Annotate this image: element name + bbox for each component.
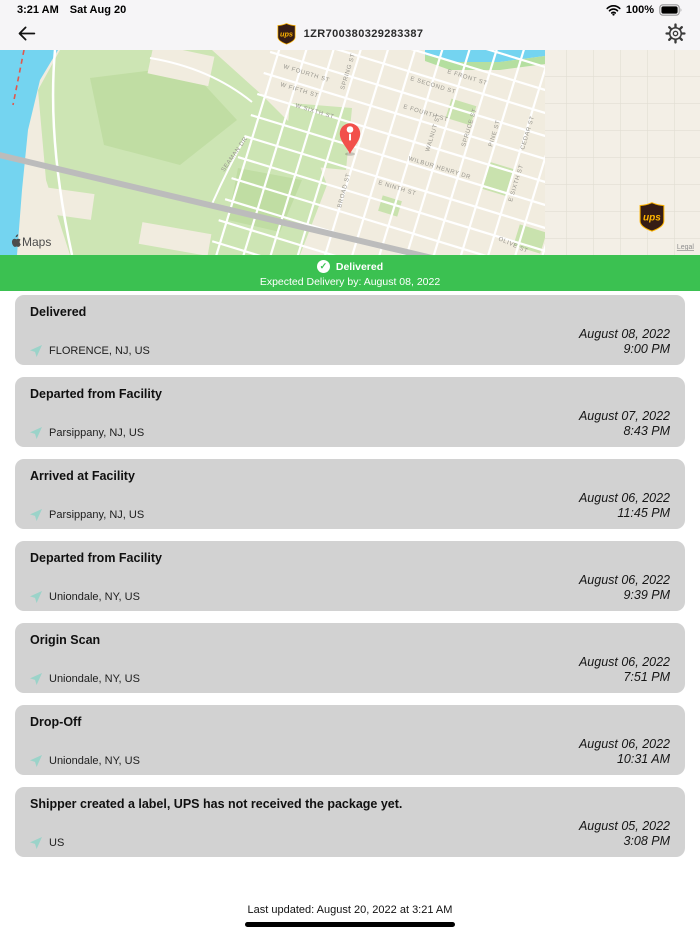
tracking-event-card: Departed from Facility Uniondale, NY, US… [15, 541, 685, 611]
event-date: August 08, 2022 [579, 327, 670, 342]
back-button[interactable] [13, 20, 39, 46]
event-title: Origin Scan [30, 633, 670, 647]
event-title: Delivered [30, 305, 670, 319]
event-location: Parsippany, NJ, US [30, 509, 144, 521]
event-title: Departed from Facility [30, 387, 670, 401]
event-time: 3:08 PM [579, 834, 670, 849]
location-arrow-icon [30, 509, 42, 521]
battery-icon [659, 4, 683, 16]
status-bar: 3:21 AM Sat Aug 20 100% [0, 0, 700, 17]
location-arrow-icon [30, 673, 42, 685]
event-title: Drop-Off [30, 715, 670, 729]
last-updated-text: Last updated: August 20, 2022 at 3:21 AM [0, 904, 700, 916]
shipment-header: 1ZR700380329283387 [277, 23, 424, 45]
event-date: August 06, 2022 [579, 737, 670, 752]
tracking-event-card: Arrived at Facility Parsippany, NJ, US A… [15, 459, 685, 529]
battery-percent: 100% [626, 4, 654, 16]
check-icon: ✓ [317, 260, 330, 273]
legal-link[interactable]: Legal [677, 244, 695, 251]
event-time: 9:39 PM [579, 588, 670, 603]
nav-bar: 1ZR700380329283387 [0, 17, 700, 50]
delivery-status-text: Delivered [336, 261, 383, 273]
event-date: August 06, 2022 [579, 491, 670, 506]
tracking-event-card: Drop-Off Uniondale, NY, US August 06, 20… [15, 705, 685, 775]
status-time: 3:21 AM [17, 4, 59, 16]
delivery-status-banner: ✓ Delivered Expected Delivery by: August… [0, 255, 700, 291]
event-datetime: August 06, 2022 9:39 PM [579, 573, 670, 603]
tracking-event-card: Shipper created a label, UPS has not rec… [15, 787, 685, 857]
expected-delivery-text: Expected Delivery by: August 08, 2022 [0, 276, 700, 288]
wifi-icon [606, 4, 621, 16]
tracking-event-card: Departed from Facility Parsippany, NJ, U… [15, 377, 685, 447]
settings-button[interactable] [662, 20, 688, 46]
map-canvas: W FOURTH STW FIFTH STW SIXTH STSPRING ST… [0, 50, 700, 255]
location-arrow-icon [30, 591, 42, 603]
event-time: 10:31 AM [579, 752, 670, 767]
svg-text:Maps: Maps [22, 235, 51, 249]
event-datetime: August 06, 2022 7:51 PM [579, 655, 670, 685]
location-arrow-icon [30, 345, 42, 357]
event-datetime: August 06, 2022 10:31 AM [579, 737, 670, 767]
delivery-map[interactable]: W FOURTH STW FIFTH STW SIXTH STSPRING ST… [0, 50, 700, 255]
event-location: Parsippany, NJ, US [30, 427, 144, 439]
tracking-event-card: Delivered FLORENCE, NJ, US August 08, 20… [15, 295, 685, 365]
event-time: 8:43 PM [579, 424, 670, 439]
event-datetime: August 07, 2022 8:43 PM [579, 409, 670, 439]
event-datetime: August 06, 2022 11:45 PM [579, 491, 670, 521]
event-title: Departed from Facility [30, 551, 670, 565]
event-location: FLORENCE, NJ, US [30, 345, 150, 357]
event-location: Uniondale, NY, US [30, 673, 140, 685]
ups-map-marker-logo [640, 203, 664, 231]
tracking-event-card: Origin Scan Uniondale, NY, US August 06,… [15, 623, 685, 693]
event-date: August 07, 2022 [579, 409, 670, 424]
gear-icon [665, 23, 686, 44]
event-datetime: August 05, 2022 3:08 PM [579, 819, 670, 849]
event-date: August 06, 2022 [579, 655, 670, 670]
event-title: Arrived at Facility [30, 469, 670, 483]
status-date: Sat Aug 20 [70, 4, 126, 16]
back-arrow-icon [16, 23, 37, 44]
tracking-number: 1ZR700380329283387 [304, 28, 424, 40]
event-location: US [30, 837, 64, 849]
event-time: 9:00 PM [579, 342, 670, 357]
event-time: 7:51 PM [579, 670, 670, 685]
location-arrow-icon [30, 427, 42, 439]
event-date: August 05, 2022 [579, 819, 670, 834]
location-arrow-icon [30, 837, 42, 849]
event-datetime: August 08, 2022 9:00 PM [579, 327, 670, 357]
event-date: August 06, 2022 [579, 573, 670, 588]
footer: Last updated: August 20, 2022 at 3:21 AM [0, 904, 700, 927]
event-title: Shipper created a label, UPS has not rec… [30, 797, 670, 811]
home-indicator[interactable] [245, 922, 455, 927]
header-area: 3:21 AM Sat Aug 20 100% [0, 0, 700, 50]
event-location: Uniondale, NY, US [30, 591, 140, 603]
location-arrow-icon [30, 755, 42, 767]
event-time: 11:45 PM [579, 506, 670, 521]
ups-logo-icon [277, 23, 296, 45]
event-location: Uniondale, NY, US [30, 755, 140, 767]
tracking-events-list: Delivered FLORENCE, NJ, US August 08, 20… [0, 291, 700, 857]
